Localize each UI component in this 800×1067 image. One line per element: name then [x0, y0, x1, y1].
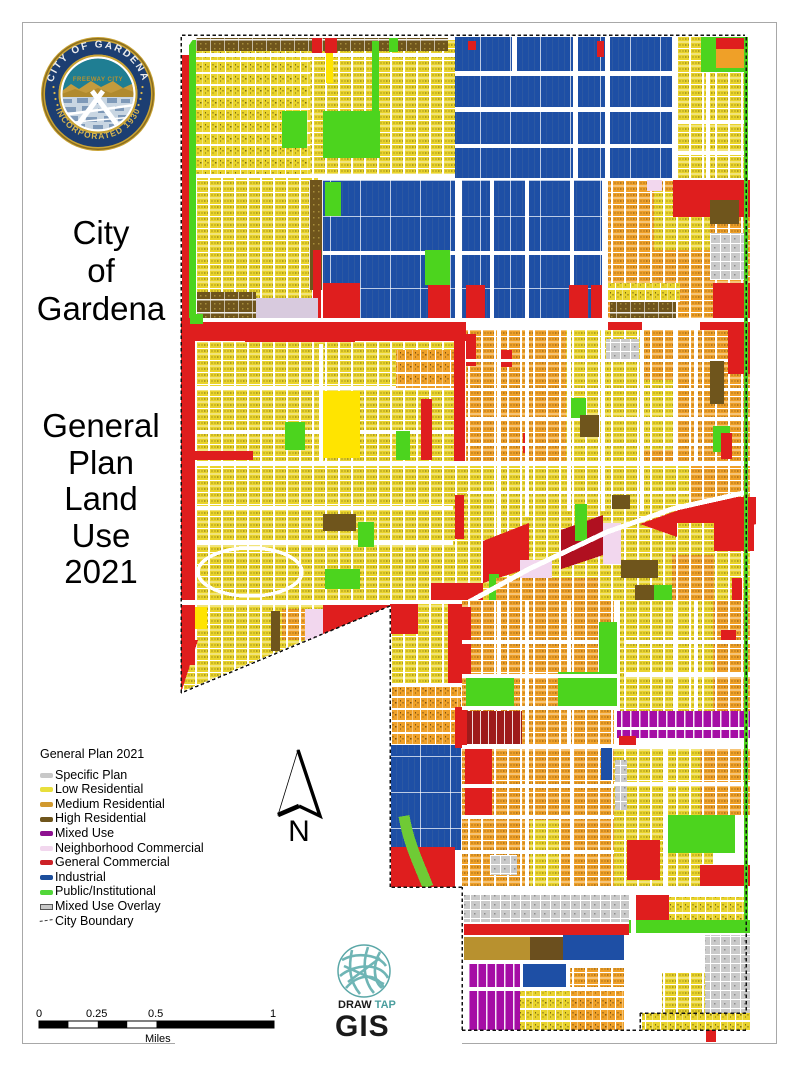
svg-text:Miles: Miles	[145, 1033, 171, 1045]
svg-text:1: 1	[270, 1008, 276, 1020]
svg-text:FREEWAY CITY: FREEWAY CITY	[73, 77, 123, 83]
svg-text:0.5: 0.5	[148, 1008, 163, 1020]
svg-text:0: 0	[36, 1008, 42, 1020]
svg-text:GIS: GIS	[335, 1010, 390, 1043]
svg-text:N: N	[288, 815, 310, 846]
svg-text:0.25: 0.25	[86, 1008, 107, 1020]
